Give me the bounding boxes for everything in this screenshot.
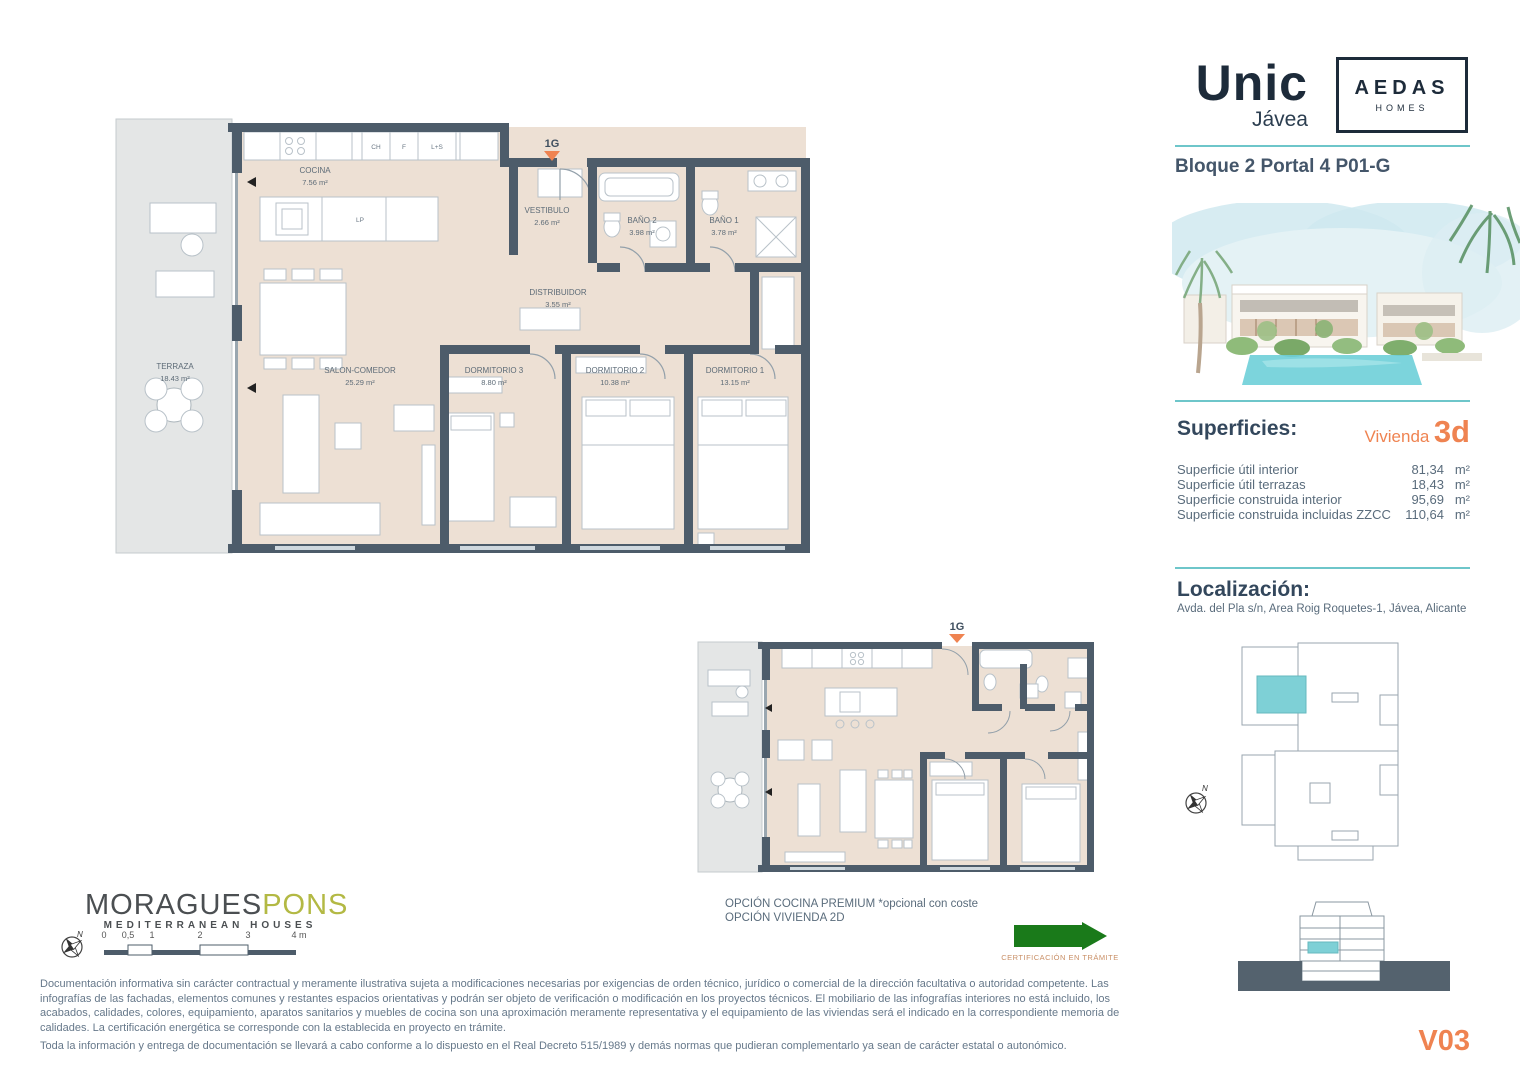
option-caption-line2: OPCIÓN VIVIENDA 2D (725, 911, 978, 925)
superficies-heading: Superficies: (1177, 417, 1297, 441)
room-label: DISTRIBUIDOR (529, 288, 587, 297)
room-label: COCINA (299, 166, 331, 175)
surface-value: 110,64 (1405, 507, 1444, 522)
scale-tick: 4 m (291, 930, 306, 940)
building-locator-plan: N (1180, 635, 1430, 870)
surface-label: Superficie útil interior (1177, 462, 1298, 477)
room-area: 10.38 m² (600, 378, 630, 387)
scale-tick: 0,5 (122, 930, 135, 940)
aedas-logo: AEDAS HOMES (1336, 57, 1468, 133)
scale-tick: 2 (197, 930, 202, 940)
fixture-label: F (402, 144, 406, 151)
terrace-area (698, 642, 762, 872)
plan-sheet: 1G COCINA 7.56 m² VESTIBULO 2.66 m² BAÑO… (0, 0, 1536, 1086)
unit-highlight (1257, 676, 1306, 713)
certification-label: CERTIFICACIÓN EN TRÁMITE (985, 953, 1135, 962)
room-area: 25.29 m² (345, 378, 375, 387)
room-label: SALON-COMEDOR (324, 366, 396, 375)
architect-name-secondary: PONS (262, 889, 348, 921)
room-label: BAÑO 2 (627, 216, 657, 225)
room-label: TERRAZA (156, 362, 194, 371)
fixture-label: CH (371, 144, 381, 151)
certification-arrow-icon (1014, 922, 1109, 952)
scale-tick: 1 (149, 930, 154, 940)
room-label: DORMITORIO 1 (706, 366, 765, 375)
aedas-name: AEDAS (1354, 77, 1449, 100)
compass-label: N (1202, 784, 1208, 793)
room-area: 13.15 m² (720, 378, 750, 387)
surface-unit: m² (1455, 477, 1470, 492)
architect-name-primary: MORAGUES (85, 889, 262, 921)
compass-icon: N (1181, 784, 1212, 818)
option-caption: OPCIÓN COCINA PREMIUM *opcional con cost… (725, 897, 978, 925)
brand-location: Jávea (1180, 108, 1308, 132)
architect-logo: MORAGUESPONS (85, 890, 335, 920)
room-area: 7.56 m² (302, 178, 328, 187)
option-caption-line1: OPCIÓN COCINA PREMIUM *opcional con cost… (725, 897, 978, 911)
room-area: 2.66 m² (534, 218, 560, 227)
disclaimer-paragraph: Documentación informativa sin carácter c… (40, 977, 1128, 1035)
entrance-label: 1G (545, 138, 560, 150)
vivienda-label: Vivienda (1364, 427, 1429, 446)
terrace-area (116, 119, 232, 553)
room-area: 3.78 m² (711, 228, 737, 237)
surface-row: Superficie útil interior 81,34 m² (1177, 462, 1470, 477)
entrance-marker: 1G (949, 621, 965, 643)
room-area: 3.98 m² (629, 228, 655, 237)
room-area: 18.43 m² (160, 374, 190, 383)
compass-label: N (77, 930, 83, 939)
fixture-label: L+S (431, 144, 443, 151)
surface-row: Superficie útil terrazas 18,43 m² (1177, 477, 1470, 492)
sheet-code: V03 (1370, 1025, 1470, 1058)
vivienda-code: 3d (1434, 414, 1470, 449)
surface-label: Superficie construida incluidas ZZCC (1177, 507, 1391, 522)
divider (1175, 567, 1470, 569)
surface-label: Superficie construida interior (1177, 492, 1342, 507)
block-title: Bloque 2 Portal 4 P01-G (1175, 156, 1390, 178)
surface-row: Superficie construida incluidas ZZCC 110… (1177, 507, 1470, 522)
building-render (1172, 203, 1520, 389)
room-label: DORMITORIO 3 (465, 366, 524, 375)
vivienda-tag: Vivienda 3d (1300, 414, 1470, 450)
brand-name: Unic (1180, 58, 1308, 108)
option-floor-plan: 1G (690, 612, 1110, 892)
room-area: 8.80 m² (481, 378, 507, 387)
divider (1175, 145, 1470, 147)
disclaimer-paragraph: Toda la información y entrega de documen… (40, 1039, 1128, 1054)
entrance-arrow-icon (949, 634, 965, 643)
localizacion-address: Avda. del Pla s/n, Area Roig Roquetes-1,… (1177, 603, 1466, 615)
room-label: BAÑO 1 (709, 216, 739, 225)
aedas-sub: HOMES (1375, 103, 1428, 113)
scale-bar: 0 0,5 1 2 3 4 m (92, 928, 322, 964)
surface-value: 81,34 (1411, 462, 1444, 477)
surface-unit: m² (1455, 507, 1470, 522)
surface-value: 18,43 (1411, 477, 1444, 492)
surface-unit: m² (1455, 462, 1470, 477)
fixture-label: LP (356, 217, 364, 224)
main-floor-plan: 1G COCINA 7.56 m² VESTIBULO 2.66 m² BAÑO… (110, 105, 850, 565)
scale-tick: 3 (245, 930, 250, 940)
room-label: VESTIBULO (525, 206, 570, 215)
surface-label: Superficie útil terrazas (1177, 477, 1306, 492)
room-area: 3.55 m² (545, 300, 571, 309)
compass-icon: N (55, 930, 89, 964)
surface-value: 95,69 (1411, 492, 1444, 507)
localizacion-heading: Localización: (1177, 578, 1310, 602)
building-elevation (1210, 878, 1470, 993)
room-label: DORMITORIO 2 (586, 366, 645, 375)
scale-tick: 0 (101, 930, 106, 940)
surface-unit: m² (1455, 492, 1470, 507)
divider (1175, 400, 1470, 402)
unit-highlight (1308, 942, 1338, 953)
entrance-label: 1G (950, 621, 965, 633)
surface-row: Superficie construida interior 95,69 m² (1177, 492, 1470, 507)
